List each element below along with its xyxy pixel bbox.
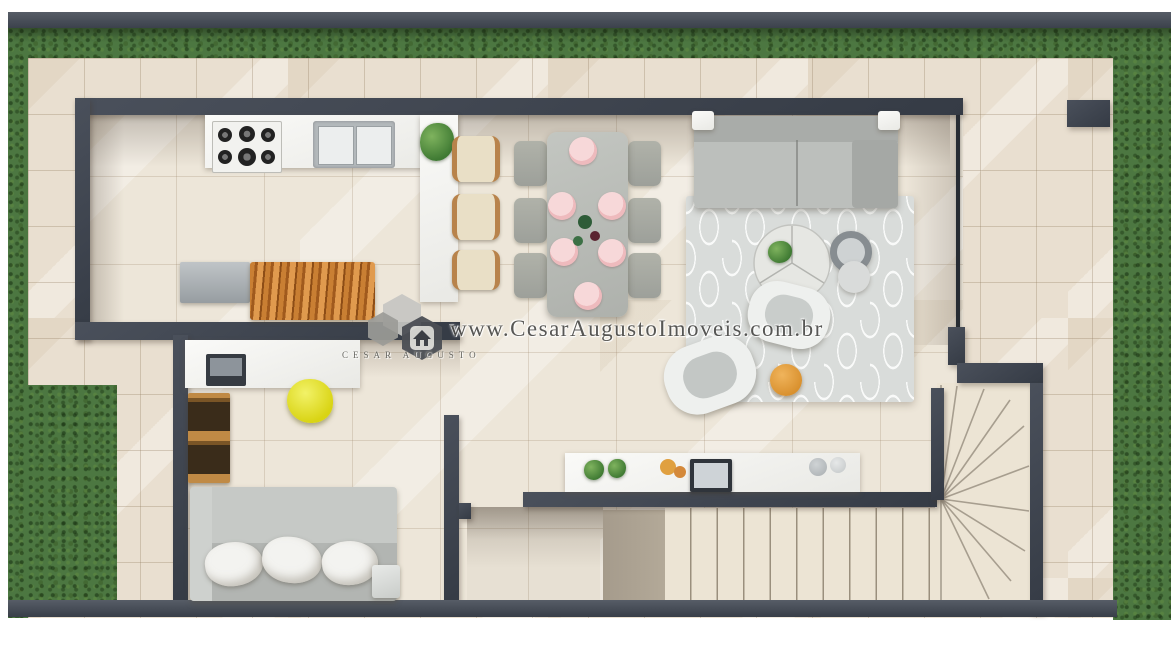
wood-prep-counter xyxy=(250,262,375,320)
floor-plan-canvas: CESAR AUGUSTO www.CesarAugustoImoveis.co… xyxy=(0,0,1171,650)
burner xyxy=(261,128,275,142)
table-centerpiece-dark xyxy=(590,231,600,241)
decor-vase xyxy=(809,458,827,476)
watermark-url-text: www.CesarAugustoImoveis.com.br xyxy=(450,316,824,342)
side-table-box xyxy=(372,565,400,598)
tv-panel xyxy=(690,459,732,492)
wall-top xyxy=(75,98,963,115)
monitor-screen xyxy=(210,358,242,376)
burner xyxy=(218,128,232,142)
sofa-cushion-divider xyxy=(796,140,798,206)
burner xyxy=(261,150,275,164)
kitchen-sink xyxy=(313,121,395,168)
nesting-side-table xyxy=(838,261,870,293)
wall-stair-right xyxy=(1030,383,1043,613)
yellow-desk-chair xyxy=(287,379,333,423)
orange-pouf xyxy=(770,364,802,396)
wall-winder-top xyxy=(957,363,1043,383)
gas-cooktop xyxy=(212,121,282,173)
sofa xyxy=(694,116,898,208)
dining-chair xyxy=(628,141,661,186)
place-setting xyxy=(569,137,597,165)
refrigerator xyxy=(180,262,250,303)
bar-stool xyxy=(452,136,500,182)
bar-stool xyxy=(452,250,500,290)
bottom-boundary-wall xyxy=(8,600,1117,617)
decor-vase xyxy=(830,457,846,473)
grass-left-strip xyxy=(8,28,28,618)
desk-monitor xyxy=(206,354,246,386)
logo-house-tile xyxy=(410,326,434,350)
burner xyxy=(238,148,256,166)
wall-door-foot xyxy=(459,503,471,519)
sink-basin xyxy=(318,126,354,165)
understairs-room-floor xyxy=(467,507,603,600)
table-centerpiece-green xyxy=(578,215,592,229)
sofa-chaise xyxy=(852,140,898,208)
dining-chair xyxy=(628,253,661,298)
bar-stool xyxy=(452,194,500,240)
place-setting xyxy=(548,192,576,220)
sideboard-orange-decor xyxy=(674,466,686,478)
dining-chair xyxy=(628,198,661,243)
wall-stair-inner xyxy=(931,388,944,500)
wood-bookshelf xyxy=(188,393,230,483)
wall-entry-stub xyxy=(1067,100,1110,127)
grass-right-strip xyxy=(1113,28,1171,620)
sofa-armrest xyxy=(692,111,714,130)
house-icon xyxy=(410,326,434,350)
burner xyxy=(239,126,255,142)
table-centerpiece-green xyxy=(573,236,583,246)
sink-basin xyxy=(356,126,392,165)
grass-garden-bottom-left xyxy=(28,385,117,600)
grass-top-strip xyxy=(8,28,1171,60)
dining-chair xyxy=(514,198,547,243)
burner xyxy=(218,150,232,164)
wall-glass-end-post xyxy=(948,327,965,365)
dining-chair xyxy=(514,141,547,186)
tv-screen xyxy=(694,463,728,488)
wall-hall-vertical xyxy=(444,415,459,605)
lounge-sofa-armrest xyxy=(190,487,212,601)
dining-chair xyxy=(514,253,547,298)
place-setting xyxy=(574,282,602,310)
watermark-brand-text: CESAR AUGUSTO xyxy=(342,350,481,360)
sofa-armrest xyxy=(878,111,900,130)
place-setting xyxy=(598,192,626,220)
wall-hall-horizontal xyxy=(523,492,937,507)
wall-left xyxy=(75,98,90,340)
armchair-seat xyxy=(677,346,742,404)
place-setting xyxy=(598,239,626,267)
glass-sliding-door xyxy=(956,115,960,345)
